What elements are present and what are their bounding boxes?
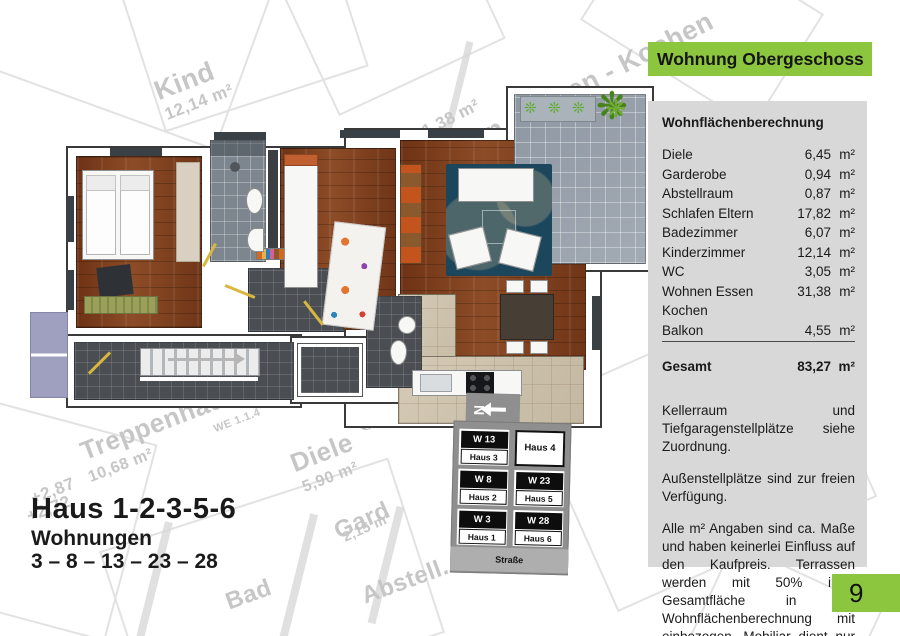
- area-calculation-panel: Wohnflächenberechnung Diele6,45m² Garder…: [648, 101, 867, 567]
- room-abstellraum: [298, 344, 362, 396]
- site-cell-haus5: W 23 Haus 5: [514, 470, 565, 507]
- north-arrow-icon: [490, 407, 506, 411]
- page-title-text: Wohnung Obergeschoss: [657, 49, 864, 70]
- window: [340, 130, 400, 138]
- street-bar: Straße: [450, 546, 569, 573]
- wardrobe: [176, 162, 200, 262]
- area-row: Garderobe0,94m²: [662, 165, 855, 185]
- area-row: Balkon4,55m²: [662, 321, 855, 343]
- kitchen-sink: [420, 374, 452, 392]
- dining-chair: [506, 280, 524, 293]
- dining-table: [500, 294, 554, 340]
- plant-icon: ❊: [548, 101, 561, 116]
- shower: [210, 140, 266, 156]
- wc-sink: [398, 316, 416, 334]
- window: [428, 130, 484, 138]
- area-row: Wohnen Essen Kochen31,38m²: [662, 282, 855, 321]
- sofa: [458, 168, 534, 202]
- site-plan: N W 13 Haus 3 Haus 4 W 8 Haus 2 W 23 Hau…: [450, 393, 579, 582]
- site-cell-haus6: W 28 Haus 6: [513, 510, 564, 547]
- note-keller: Kellerraum und Tiefgaragenstellplätze si…: [662, 402, 855, 456]
- bed-headboard: [284, 154, 318, 166]
- built-in-wardrobe: [268, 150, 278, 260]
- single-bed: [284, 154, 318, 288]
- site-cell-haus4: Haus 4: [515, 430, 566, 467]
- site-cell-haus1: W 3 Haus 1: [457, 509, 508, 546]
- bench: [84, 296, 158, 314]
- window: [214, 132, 266, 140]
- area-row: Schlafen Eltern17,82m²: [662, 204, 855, 224]
- area-row: Kinderzimmer12,14m²: [662, 243, 855, 263]
- panel-title: Wohnflächenberechnung: [662, 115, 855, 130]
- sideboard: [400, 164, 422, 264]
- wohnungen-numbers: 3 – 8 – 13 – 23 – 28: [31, 550, 236, 573]
- window: [66, 270, 74, 310]
- palm-plant-icon: ❋: [606, 98, 626, 122]
- plant-icon: ❊: [524, 101, 537, 116]
- wohnungen-label: Wohnungen: [31, 527, 236, 550]
- stove: [466, 372, 494, 394]
- area-total-row: Gesamt83,27m²: [662, 357, 855, 377]
- page-number: 9: [849, 578, 863, 609]
- dark-chest: [96, 264, 133, 298]
- site-cell-haus2: W 8 Haus 2: [458, 469, 509, 506]
- neighbour-roof: [30, 312, 68, 398]
- bathroom-sink: [247, 228, 264, 252]
- window: [592, 296, 600, 350]
- pillow: [120, 175, 150, 191]
- window: [110, 148, 162, 156]
- plant-icon: ❊: [572, 101, 585, 116]
- note-aussenstellplaetze: Außenstellplätze sind zur freien Verfügu…: [662, 470, 855, 506]
- note-disclaimer: Alle m² Angaben sind ca. Maße und haben …: [662, 520, 855, 636]
- haus-title: Haus 1-2-3-5-6: [31, 494, 236, 524]
- shower-head: [230, 162, 240, 172]
- brochure-page: Kind 12,14 m² Wohnen - Essen - Kochen 31…: [0, 0, 900, 636]
- site-cell-haus3: W 13 Haus 3: [459, 429, 510, 466]
- area-row: Diele6,45m²: [662, 145, 855, 165]
- stair-arrow-head: [234, 352, 245, 366]
- area-row: Abstellraum0,87m²: [662, 184, 855, 204]
- title-block: Haus 1-2-3-5-6 Wohnungen 3 – 8 – 13 – 23…: [31, 494, 236, 573]
- stair-direction-arrow: [168, 358, 234, 361]
- window: [66, 196, 74, 242]
- street-label: Straße: [495, 555, 523, 566]
- pillow: [86, 175, 116, 191]
- page-title: Wohnung Obergeschoss: [648, 42, 872, 76]
- stair-divider: [140, 377, 258, 381]
- dining-chair: [506, 341, 524, 354]
- dining-chair: [530, 341, 548, 354]
- page-number-badge: 9: [832, 574, 900, 612]
- dining-chair: [530, 280, 548, 293]
- area-row: Badezimmer6,07m²: [662, 223, 855, 243]
- area-row: WC3,05m²: [662, 262, 855, 282]
